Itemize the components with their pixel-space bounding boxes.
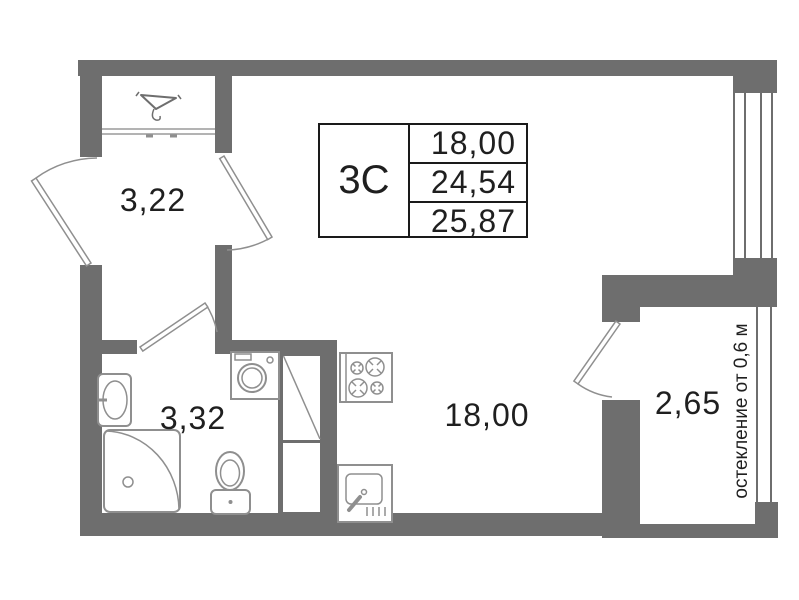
balcony-door xyxy=(574,321,620,397)
stove xyxy=(340,353,392,402)
living-room-door xyxy=(220,156,272,250)
floor-plan: 3,22 3,32 18,00 2,65 остекление от 0,6 м… xyxy=(0,0,799,600)
table-row-living-area: 18,00 xyxy=(410,125,526,162)
table-row-apartment-area: 24,54 xyxy=(410,162,526,201)
balcony-glazing xyxy=(757,307,771,502)
shower xyxy=(104,430,180,512)
window-glazing xyxy=(734,93,772,258)
wardrobe-front xyxy=(102,129,215,136)
bathroom-area-label: 3,32 xyxy=(150,400,236,437)
coat-hanger-icon xyxy=(136,92,181,120)
bathroom-door xyxy=(140,303,217,351)
kitchen-sink xyxy=(338,465,392,522)
hallway-area-label: 3,22 xyxy=(110,182,196,219)
area-values-column: 18,00 24,54 25,87 xyxy=(410,125,526,236)
toilet xyxy=(211,452,250,514)
area-info-table: 3С 18,00 24,54 25,87 xyxy=(318,123,528,238)
bathroom-sink xyxy=(98,374,131,426)
washing-machine xyxy=(231,352,279,399)
glazing-note: остекление от 0,6 м xyxy=(731,309,753,513)
ventilation-shaft-diagonal xyxy=(284,356,321,439)
table-row-total-area: 25,87 xyxy=(410,201,526,240)
apartment-type-label: 3С xyxy=(320,125,410,236)
balcony-area-label: 2,65 xyxy=(645,385,731,422)
living-room-area-label: 18,00 xyxy=(432,397,542,434)
entrance-door xyxy=(32,158,98,266)
